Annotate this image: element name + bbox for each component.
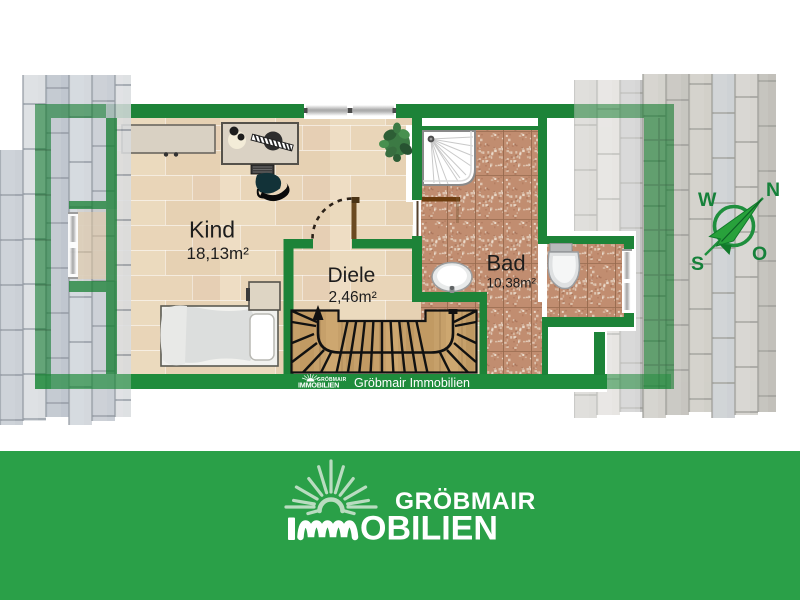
svg-text:N: N <box>766 179 780 201</box>
svg-text:10,38m²: 10,38m² <box>487 276 537 291</box>
svg-text:IMMOBILIEN: IMMOBILIEN <box>298 381 339 390</box>
svg-text:O: O <box>752 243 767 265</box>
svg-text:Diele: Diele <box>328 264 376 287</box>
svg-text:OBILIEN: OBILIEN <box>360 510 498 548</box>
svg-text:18,13m²: 18,13m² <box>187 244 250 263</box>
svg-text:Kind: Kind <box>189 217 235 243</box>
svg-text:Bad: Bad <box>487 251 526 276</box>
svg-text:2,46m²: 2,46m² <box>329 289 377 306</box>
svg-text:Gröbmair Immobilien: Gröbmair Immobilien <box>354 376 470 390</box>
svg-text:W: W <box>698 189 717 211</box>
svg-text:S: S <box>691 253 704 275</box>
